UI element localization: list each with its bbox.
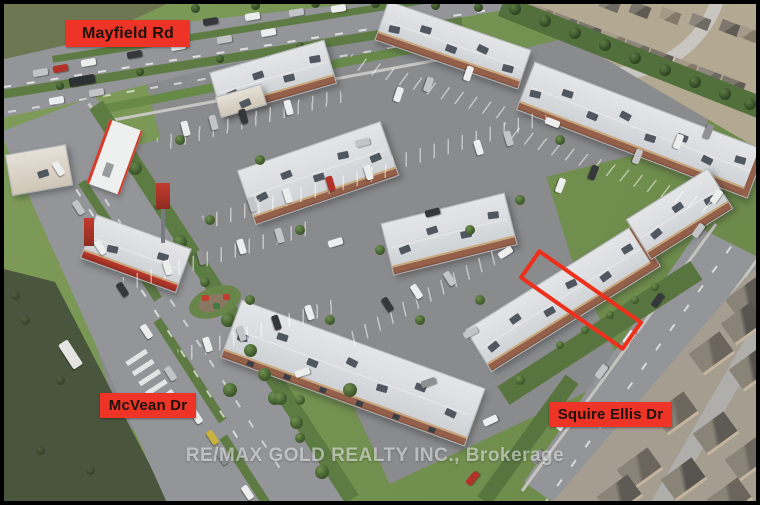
tree [315,465,329,479]
rooftop-hvac-unit [388,25,400,34]
tree [465,225,475,235]
tree [191,4,200,13]
car [330,3,346,12]
tree [515,375,525,385]
tree [136,68,144,76]
store-corner-sign [84,218,94,246]
car [244,11,260,20]
road-label-mayfield: Mayfield Rd [66,20,190,47]
rooftop-hvac-unit [239,98,252,109]
pylon-sign-pole [161,209,165,243]
road-label-squire-ellis: Squire Ellis Dr [549,402,672,427]
tree [744,98,756,110]
tree [325,315,335,325]
rooftop-hvac-unit [619,110,632,121]
play-structure [213,303,220,309]
tree [539,15,551,27]
tree [274,392,287,405]
tree [223,383,237,397]
road-label-mcvean: McVean Dr [100,393,196,418]
tree [719,88,731,100]
scrub-tree [11,291,20,300]
rooftop-hvac-unit [487,211,499,219]
rooftop-hvac-unit [276,332,289,342]
tree [431,1,440,10]
rooftop-hvac-unit [106,245,118,254]
tree [295,433,305,443]
house-roof [737,25,760,43]
rooftop-hvac-unit [375,383,388,393]
car [288,7,304,16]
scrub-tree [56,376,65,385]
tree [56,82,64,90]
tree [205,215,215,225]
house-roof [707,477,754,505]
tree [599,39,611,51]
tree [255,155,265,165]
tree [251,1,260,10]
tree [689,76,701,88]
rooftop-hvac-unit [309,55,321,64]
play-structure [202,295,209,301]
shrub [651,283,659,291]
tree [659,64,671,76]
tree [474,3,483,12]
play-structure [223,294,230,300]
tree [569,27,581,39]
house-roof [725,437,760,481]
tree [295,395,305,405]
tree [375,245,385,255]
rooftop-hvac-unit [734,155,747,165]
aerial-site-rendering: Mayfield Rd McVean Dr Squire Ellis Dr RE… [0,0,760,505]
tree [415,315,425,325]
rooftop-hvac-unit [426,225,439,235]
tree [475,295,485,305]
rooftop-hvac-unit [345,357,358,368]
shrub [556,341,564,349]
tree [509,3,521,15]
scrub-tree [36,446,45,455]
car [554,177,566,194]
tree [555,135,565,145]
tree [245,295,255,305]
site-plan-scene [0,0,760,505]
brick-end-wall [741,149,760,198]
tree [200,277,210,287]
rooftop-hvac-unit [562,89,575,99]
car [202,16,218,25]
tree [311,0,320,8]
tree [216,55,224,63]
shrub [631,296,639,304]
tree [258,368,271,381]
pylon-sign [156,183,170,209]
rooftop-hvac-unit [280,169,293,180]
rooftop-hvac-unit [283,73,295,82]
scrub-tree [86,466,95,475]
tree [175,135,185,145]
rooftop-hvac-unit [36,169,49,179]
tree [343,383,357,397]
scrub-tree [21,316,30,325]
tree [629,52,641,64]
tree [290,416,303,429]
tree [244,344,257,357]
brokerage-watermark: RE/MAX GOLD REALTY INC., Brokerage [186,445,564,467]
rooftop-hvac-unit [529,89,541,98]
car [464,470,479,486]
rooftop-hvac-unit [337,150,349,159]
tree [295,225,305,235]
tree [515,195,525,205]
